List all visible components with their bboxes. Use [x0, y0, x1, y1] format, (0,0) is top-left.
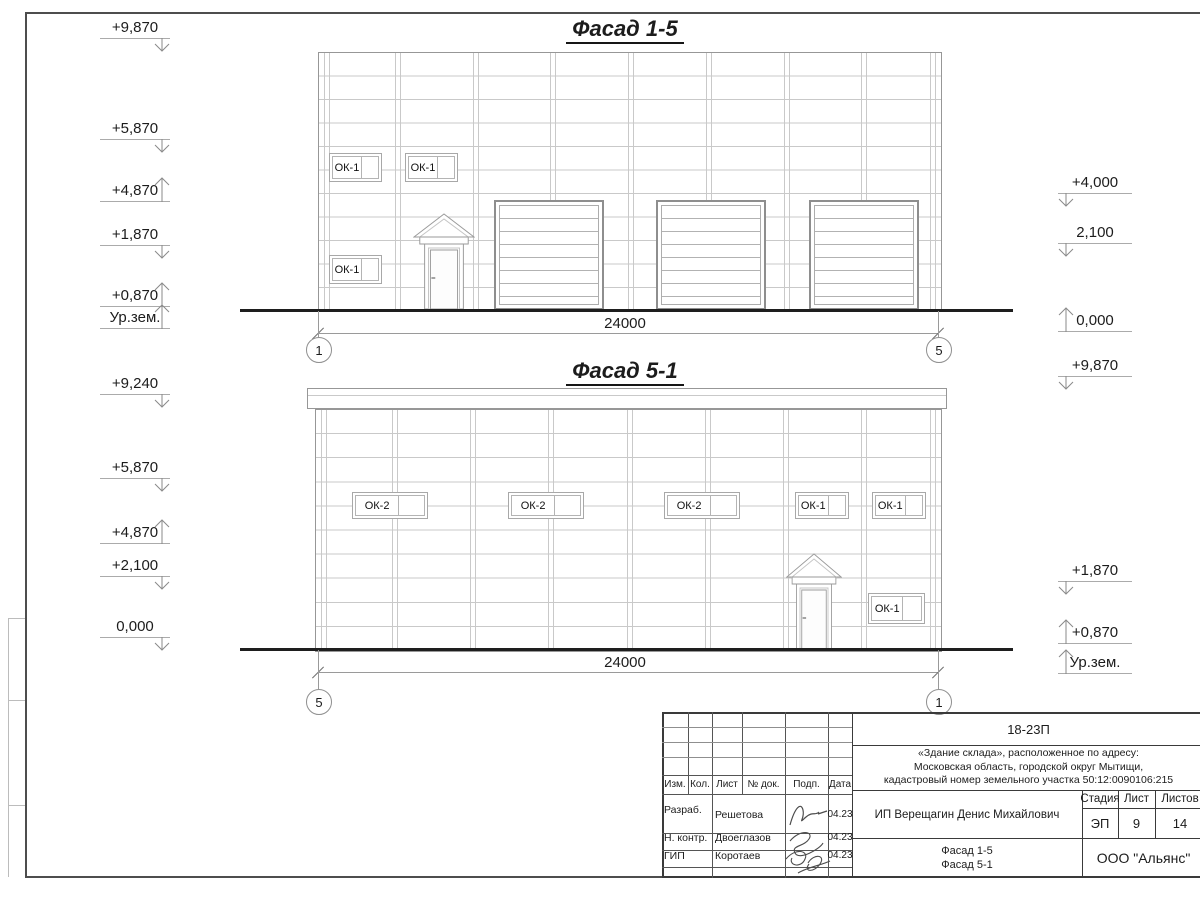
elevation-arrow-down: [153, 38, 171, 53]
panel-joint: [705, 410, 711, 651]
elevation-mark-value: +1,870: [96, 226, 174, 244]
margin-column-line: [8, 618, 9, 877]
window: ОК-1: [329, 153, 382, 182]
corner-joint: [930, 410, 936, 651]
axis-bubble: 5: [926, 337, 952, 363]
frame-top: [25, 12, 1200, 14]
project-address: «Здание склада», расположенное по адресу…: [854, 747, 1200, 788]
facade-wall: [315, 409, 942, 652]
window: ОК-1: [329, 255, 382, 284]
elevation-arrow-up: [153, 175, 171, 202]
tb-header-col: Дата: [828, 776, 852, 793]
drawing-sheet: Фасад 1-5 Фасад 5-1 ОК-1 ОК-1 ОК-1240001…: [0, 0, 1200, 900]
window-frame: ОК-1: [875, 495, 923, 516]
tb-h: [662, 757, 852, 758]
elevation-arrow-up: [1057, 617, 1075, 644]
margin-divider: [8, 700, 25, 701]
sheets-total: 14: [1155, 809, 1200, 838]
panel-joint: [548, 410, 554, 651]
tb-header-col: Кол.: [688, 776, 712, 793]
project-code: 18-23П: [852, 716, 1200, 742]
tb-header-col: № док.: [742, 776, 785, 793]
sheet-label: Лист: [1118, 791, 1155, 807]
tb-header-col: Подп.: [785, 776, 828, 793]
elevation-arrow-down: [153, 245, 171, 260]
window-label: ОК-2: [356, 496, 398, 515]
elevation-arrow-up: [153, 517, 171, 544]
elevation-arrow-down: [1057, 581, 1075, 596]
window: ОК-1: [795, 492, 849, 519]
panel-joint: [470, 410, 476, 651]
window-frame: ОК-1: [332, 258, 379, 281]
window: ОК-1: [405, 153, 458, 182]
address-line: «Здание склада», расположенное по адресу…: [918, 747, 1139, 761]
tb-h: [662, 794, 852, 795]
elevation-mark-value: +2,100: [96, 557, 174, 575]
window-frame: ОК-1: [798, 495, 846, 516]
tb-staff-role: Н. контр.: [664, 829, 712, 846]
dimension-value: 24000: [500, 315, 750, 332]
window-mullion: [828, 496, 829, 515]
elevation-arrow-down: [1057, 376, 1075, 391]
window-label: ОК-2: [668, 496, 710, 515]
window: ОК-2: [352, 492, 428, 519]
window: ОК-2: [664, 492, 740, 519]
window-mullion: [902, 597, 903, 620]
parapet-line: [308, 395, 946, 396]
sheets-label: Листов: [1155, 791, 1200, 807]
window-label: ОК-1: [333, 157, 361, 178]
window-label: ОК-2: [512, 496, 554, 515]
tb-h: [662, 727, 852, 728]
panel-joint: [627, 410, 633, 651]
margin-divider: [8, 618, 25, 619]
tb-h: [852, 838, 1200, 839]
elevation-mark-value: +9,870: [1054, 357, 1136, 375]
panel-joint: [395, 53, 401, 311]
company-name: ООО "Альянс": [1082, 840, 1200, 876]
panel-joint: [861, 410, 867, 651]
window: ОК-2: [508, 492, 584, 519]
sheet-content-title: Фасад 1-5 Фасад 5-1: [852, 841, 1082, 875]
corner-joint: [321, 410, 327, 651]
elevation-arrow-down: [153, 478, 171, 493]
signature-reshetova: [786, 799, 830, 829]
tb-staff-role: Разраб.: [664, 801, 712, 818]
dimension-value: 24000: [500, 654, 750, 671]
dimension-line: [318, 672, 938, 673]
window-mullion: [905, 496, 906, 515]
elevation-arrow-down: [153, 394, 171, 409]
elevation-mark-value: +4,000: [1054, 174, 1136, 192]
facade-5-1-title: Фасад 5-1: [500, 358, 750, 384]
client-name: ИП Верещагин Денис Михайлович: [852, 793, 1082, 836]
facade-1-5-title: Фасад 1-5: [500, 16, 750, 42]
elevation-arrow-up: [1057, 647, 1075, 674]
sheet-number: 9: [1118, 809, 1155, 838]
window-frame: ОК-2: [511, 495, 581, 516]
elevation-mark-value: +9,240: [96, 375, 174, 393]
gate-slats: [814, 205, 914, 305]
panel-joint: [784, 53, 790, 311]
extension-line: [938, 650, 939, 689]
tb-staff-name: Двоеглазов: [715, 829, 783, 846]
dimension-line: [318, 333, 938, 334]
extension-line: [318, 650, 319, 689]
window-mullion: [437, 157, 438, 178]
stage-value: ЭП: [1082, 809, 1118, 838]
window: ОК-1: [872, 492, 926, 519]
entrance-door: [413, 212, 475, 310]
elevation-arrow-up: [1057, 305, 1075, 332]
elevation-arrow-down: [153, 139, 171, 154]
panel-joint: [628, 53, 634, 311]
tb-v: [712, 712, 713, 878]
window-frame: ОК-1: [332, 156, 379, 179]
ground-line: [240, 648, 1013, 651]
tb-staff-date: 04.23: [828, 806, 852, 823]
doc-title-line: Фасад 1-5: [941, 844, 992, 858]
gate-slats: [661, 205, 761, 305]
window-mullion: [398, 496, 399, 515]
gate-slats: [499, 205, 599, 305]
elevation-mark-value: 0,000: [96, 618, 174, 636]
window-frame: ОК-1: [871, 596, 922, 621]
window-frame: ОК-1: [408, 156, 455, 179]
elevation-arrow-down: [1057, 243, 1075, 258]
address-line: Московская область, городской округ Мыти…: [914, 761, 1143, 775]
window-label: ОК-1: [333, 259, 361, 280]
elevation-mark-value: +9,870: [96, 19, 174, 37]
tb-h: [852, 745, 1200, 746]
window-mullion: [554, 496, 555, 515]
elevation-mark-value: +1,870: [1054, 562, 1136, 580]
margin-divider: [8, 805, 25, 806]
elevation-arrow-down: [153, 637, 171, 652]
sectional-gate: [494, 200, 604, 310]
tb-header-col: Лист: [712, 776, 742, 793]
window-mullion: [710, 496, 711, 515]
elevation-arrow-down: [1057, 193, 1075, 208]
signature-dvoeglazov-korotaev: [778, 827, 840, 877]
tb-staff-name: Коротаев: [715, 847, 783, 864]
window-frame: ОК-2: [667, 495, 737, 516]
frame-left: [25, 12, 27, 878]
extension-line: [318, 311, 319, 337]
tb-staff-name: Решетова: [715, 806, 783, 823]
corner-joint: [930, 53, 936, 311]
axis-bubble: 1: [306, 337, 332, 363]
window-label: ОК-1: [876, 496, 905, 515]
elevation-arrow-down: [153, 576, 171, 591]
window-mullion: [361, 259, 362, 280]
elevation-mark-value: +5,870: [96, 459, 174, 477]
sectional-gate: [809, 200, 919, 310]
window-label: ОК-1: [409, 157, 437, 178]
axis-bubble: 5: [306, 689, 332, 715]
extension-line: [938, 311, 939, 337]
elevation-mark-value: +5,870: [96, 120, 174, 138]
window-label: ОК-1: [799, 496, 828, 515]
doc-title-line: Фасад 5-1: [941, 858, 992, 872]
address-line: кадастровый номер земельного участка 50:…: [884, 774, 1173, 788]
window-mullion: [361, 157, 362, 178]
tb-staff-role: ГИП: [664, 847, 712, 864]
ground-line: [240, 309, 1013, 312]
window-label: ОК-1: [872, 597, 902, 620]
tb-header-col: Изм.: [662, 776, 688, 793]
elevation-mark-value: 2,100: [1054, 224, 1136, 242]
stage-label: Стадия: [1082, 791, 1118, 807]
parapet-band: [307, 388, 947, 409]
window: ОК-1: [868, 593, 925, 624]
sectional-gate: [656, 200, 766, 310]
elevation-arrow-up: [153, 302, 171, 329]
panel-joint: [392, 410, 398, 651]
tb-h: [662, 742, 852, 743]
entrance-door: [786, 552, 842, 650]
window-frame: ОК-2: [355, 495, 425, 516]
